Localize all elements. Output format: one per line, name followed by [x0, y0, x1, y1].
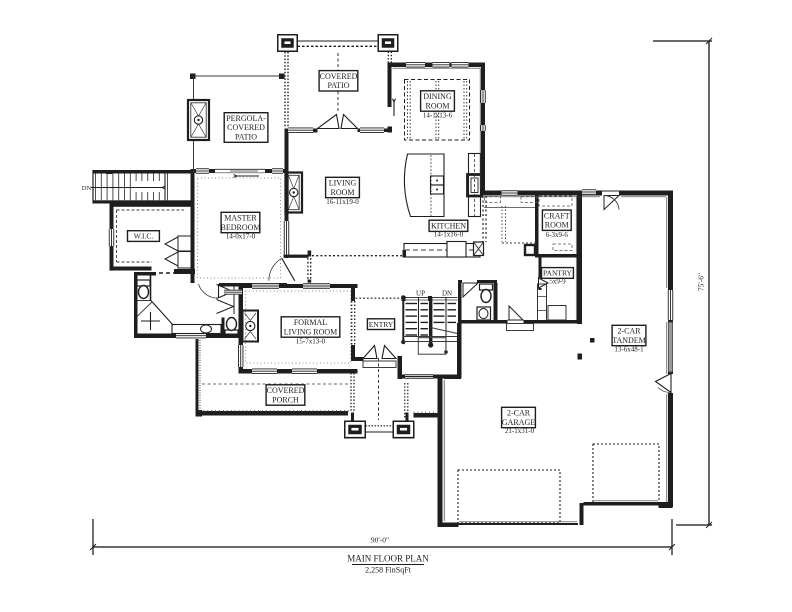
svg-text:2,258 FinSqFt: 2,258 FinSqFt	[365, 566, 412, 575]
svg-text:COVERED: COVERED	[227, 123, 265, 132]
svg-text:PERGOLA-: PERGOLA-	[226, 114, 266, 123]
svg-text:W.I.C.: W.I.C.	[134, 232, 154, 241]
svg-text:ROOM: ROOM	[330, 188, 354, 197]
svg-text:DN: DN	[82, 185, 92, 192]
svg-text:ENTRY: ENTRY	[369, 320, 394, 329]
svg-text:14-1x16-0: 14-1x16-0	[434, 231, 464, 239]
svg-text:FORMAL: FORMAL	[294, 318, 327, 327]
svg-text:13-6x48-1: 13-6x48-1	[614, 346, 644, 354]
svg-text:6-3x9-6: 6-3x9-6	[546, 231, 569, 239]
svg-text:PORCH: PORCH	[272, 395, 299, 404]
svg-text:2-CAR: 2-CAR	[507, 409, 531, 418]
svg-text:21-1x31-0: 21-1x31-0	[505, 427, 535, 435]
svg-text:14-0x17-0: 14-0x17-0	[226, 233, 256, 241]
svg-text:LIVING ROOM: LIVING ROOM	[284, 327, 338, 336]
svg-text:16-11x19-0: 16-11x19-0	[326, 198, 359, 206]
svg-text:COVERED: COVERED	[267, 386, 305, 395]
svg-text:DN: DN	[442, 290, 452, 298]
svg-text:KITCHEN: KITCHEN	[431, 222, 466, 231]
svg-text:PANTRY: PANTRY	[543, 269, 572, 278]
svg-text:ROOM: ROOM	[425, 101, 449, 110]
svg-text:2-CAR: 2-CAR	[617, 327, 641, 336]
svg-text:BEDROOM: BEDROOM	[220, 223, 260, 232]
svg-text:CRAFT: CRAFT	[544, 211, 570, 220]
svg-text:ROOM: ROOM	[545, 221, 569, 230]
svg-text:MASTER: MASTER	[224, 214, 257, 223]
svg-text:PATIO: PATIO	[235, 132, 257, 141]
svg-text:PATIO: PATIO	[328, 81, 350, 90]
svg-text:75'-6": 75'-6"	[697, 273, 706, 291]
svg-text:90'-0": 90'-0"	[371, 536, 389, 545]
svg-text:MAIN FLOOR PLAN: MAIN FLOOR PLAN	[347, 554, 429, 564]
svg-text:15-7x13-0: 15-7x13-0	[296, 338, 326, 346]
svg-text:UP: UP	[416, 290, 425, 298]
svg-text:DINING: DINING	[423, 92, 452, 101]
svg-text:LIVING: LIVING	[329, 179, 357, 188]
svg-text:COVERED: COVERED	[320, 72, 358, 81]
svg-text:14-1x13-6: 14-1x13-6	[423, 112, 453, 120]
svg-text:5x9-9: 5x9-9	[549, 278, 566, 286]
svg-text:GARAGE: GARAGE	[502, 418, 535, 427]
svg-text:TANDEM: TANDEM	[612, 336, 646, 345]
